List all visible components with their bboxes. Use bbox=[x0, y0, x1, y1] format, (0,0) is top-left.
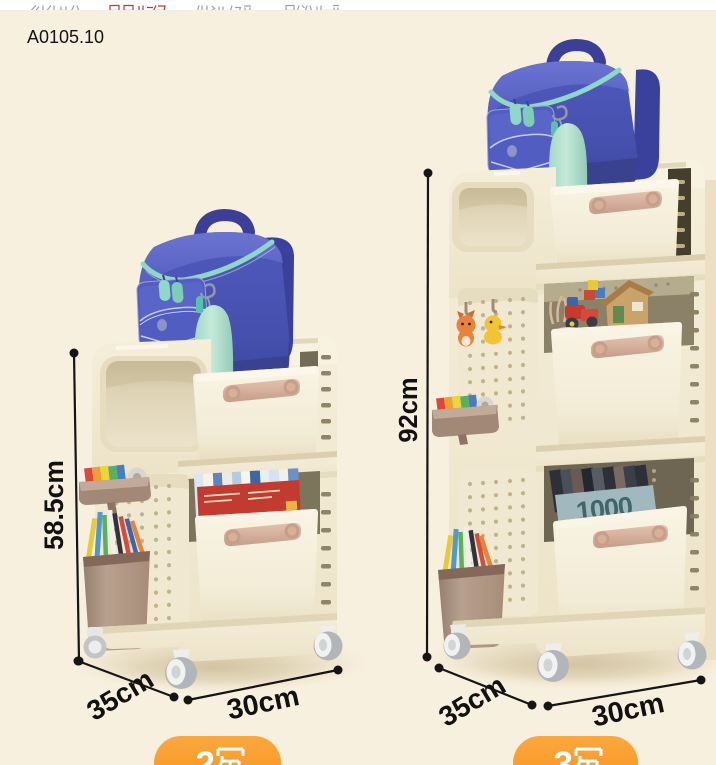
svg-text:58.5cm: 58.5cm bbox=[39, 460, 69, 550]
svg-text:30cm: 30cm bbox=[589, 687, 667, 733]
svg-text:92cm: 92cm bbox=[395, 377, 423, 442]
svg-text:3: 3 bbox=[554, 745, 573, 765]
svg-text:2: 2 bbox=[196, 745, 215, 765]
